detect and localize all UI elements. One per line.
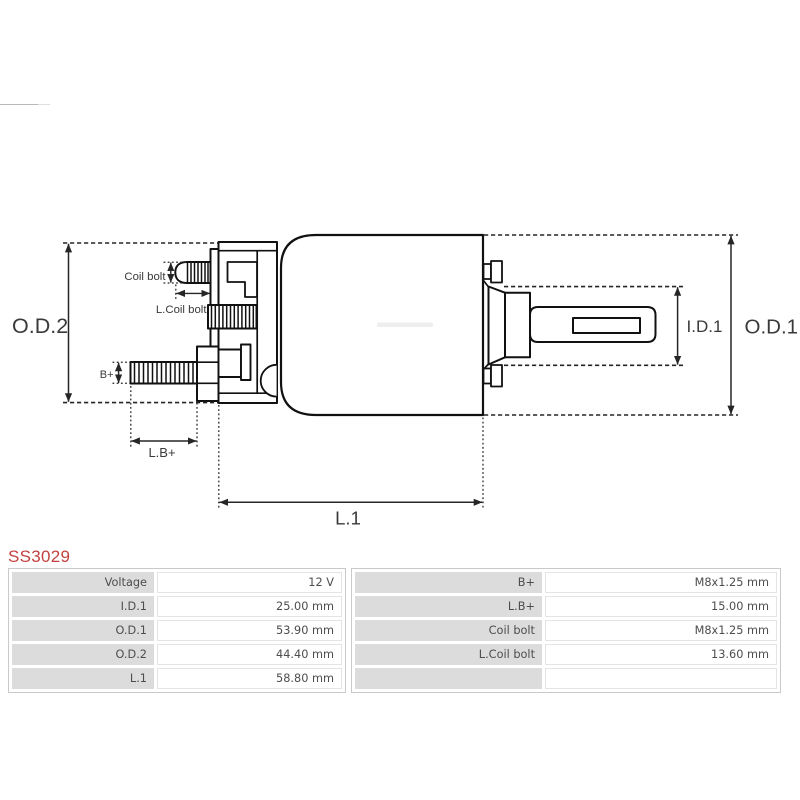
l-coil-bolt-stud [208,305,257,329]
dim-l1: L.1 [219,405,483,529]
spec-row-right-4 [355,668,777,689]
dim-l-coil-bolt: L.Coil bolt [156,285,210,316]
spec-label: L.Coil bolt [355,644,542,665]
dim-lb-plus: L.B+ [131,386,197,460]
watermark-smudge [377,323,433,328]
plunger-assembly [484,281,656,370]
spec-label: Coil bolt [355,620,542,641]
coil-bolt [175,262,210,283]
spec-label: I.D.1 [12,596,154,617]
spec-value: 25.00 mm [157,596,342,617]
dim-label-b-plus: B+ [100,369,114,381]
spec-label: L.1 [12,668,154,689]
spec-row-right-0: B+M8x1.25 mm [355,572,777,593]
spec-tables: Voltage12 VI.D.125.00 mmO.D.153.90 mmO.D… [8,568,781,693]
spec-label: O.D.1 [12,620,154,641]
coil-bolt-threads [188,263,209,283]
spec-value: 58.80 mm [157,668,342,689]
spec-label: Voltage [12,572,154,593]
spec-row-right-2: Coil boltM8x1.25 mm [355,620,777,641]
nose-collar [489,287,506,365]
dim-label-l1: L.1 [335,508,361,529]
spec-row-left-1: I.D.125.00 mm [12,596,342,617]
b-plus-sleeve [219,350,242,378]
spec-value: 53.90 mm [157,620,342,641]
spec-row-left-3: O.D.244.40 mm [12,644,342,665]
product-spec-page: O.D.2 Coil bolt L.Coil bolt B+ L.B+ L.1 [0,0,800,800]
b-plus-rod [131,362,198,384]
b-plus-nut [197,347,219,402]
spec-row-right-1: L.B+15.00 mm [355,596,777,617]
dim-label-l-coil-bolt: L.Coil bolt [156,304,207,316]
spec-table-left: Voltage12 VI.D.125.00 mmO.D.153.90 mmO.D… [8,568,346,693]
spec-value: M8x1.25 mm [545,620,777,641]
spec-value: M8x1.25 mm [545,572,777,593]
part-number: SS3029 [8,547,70,567]
spec-value [545,668,777,689]
spec-value: 12 V [157,572,342,593]
dim-label-od2: O.D.2 [12,314,68,338]
spec-row-left-4: L.158.80 mm [12,668,342,689]
dim-b-plus: B+ [100,362,130,383]
spec-value: 13.60 mm [545,644,777,665]
dim-label-lb-plus: L.B+ [148,445,175,460]
spec-row-right-3: L.Coil bolt13.60 mm [355,644,777,665]
spec-value: 44.40 mm [157,644,342,665]
spec-row-left-0: Voltage12 V [12,572,342,593]
technical-drawing: O.D.2 Coil bolt L.Coil bolt B+ L.B+ L.1 [0,0,800,545]
plunger-slot [573,318,640,333]
nose-hub [505,293,530,358]
dim-label-od1: O.D.1 [745,316,799,339]
dim-label-id1: I.D.1 [687,317,723,336]
spec-label: L.B+ [355,596,542,617]
spec-label: O.D.2 [12,644,154,665]
spec-table-right: B+M8x1.25 mmL.B+15.00 mmCoil boltM8x1.25… [351,568,781,693]
spec-label: B+ [355,572,542,593]
b-plus-washer [241,345,251,381]
spec-row-left-2: O.D.153.90 mm [12,620,342,641]
spec-value: 15.00 mm [545,596,777,617]
spec-label [355,668,542,689]
dim-label-coil-bolt: Coil bolt [124,271,166,283]
